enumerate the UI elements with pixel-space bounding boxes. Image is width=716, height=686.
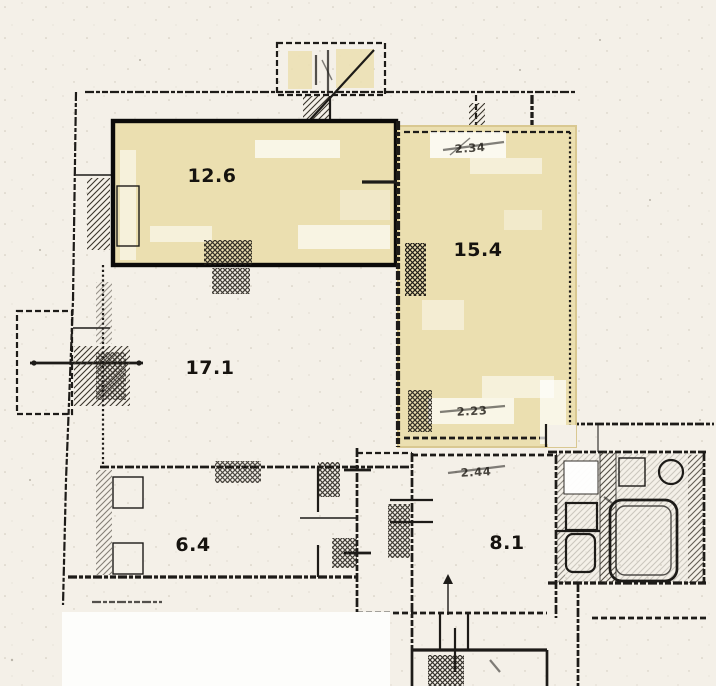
room-label-12-6: 12.6 bbox=[188, 165, 237, 187]
room-label-6-4: 6.4 bbox=[175, 534, 210, 556]
room-15-4: 15.4 2.34 2.23 bbox=[398, 121, 598, 452]
scan-void bbox=[62, 612, 390, 686]
floor-plan-scan: 12.6 15.4 2.34 2.23 bbox=[0, 0, 716, 686]
bathroom bbox=[548, 452, 706, 583]
wall-cavity-hatch bbox=[87, 178, 110, 250]
room-label-8-1: 8.1 bbox=[489, 532, 524, 554]
room-label-15-4: 15.4 bbox=[454, 239, 503, 261]
floor-plan-canvas: 12.6 15.4 2.34 2.23 bbox=[0, 0, 716, 686]
room-label-17-1: 17.1 bbox=[186, 357, 235, 379]
sink-symbol bbox=[564, 461, 598, 494]
door-frame-hatch bbox=[388, 504, 410, 558]
